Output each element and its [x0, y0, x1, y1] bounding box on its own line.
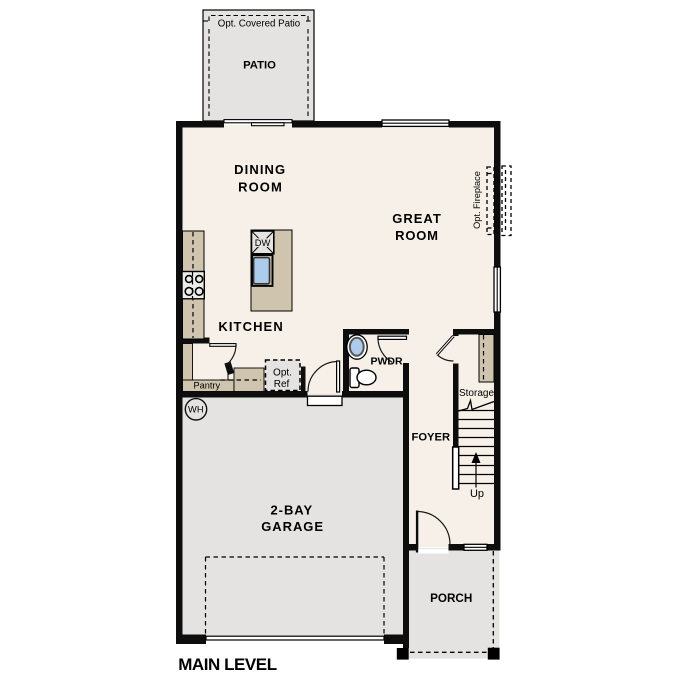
svg-text:WH: WH [188, 405, 204, 415]
svg-text:PATIO: PATIO [243, 60, 276, 72]
svg-text:KITCHEN: KITCHEN [218, 319, 283, 334]
svg-text:DINING: DINING [234, 162, 286, 177]
svg-text:PWDR: PWDR [370, 355, 402, 367]
svg-text:ROOM: ROOM [395, 228, 439, 243]
svg-text:Pantry: Pantry [194, 380, 221, 390]
svg-text:Storage: Storage [459, 388, 494, 399]
svg-text:PORCH: PORCH [430, 592, 472, 605]
svg-text:2-BAY: 2-BAY [271, 503, 314, 518]
svg-text:Ref: Ref [274, 379, 290, 390]
svg-text:Opt. Covered Patio: Opt. Covered Patio [218, 18, 300, 29]
svg-text:FOYER: FOYER [412, 432, 451, 444]
svg-text:DW: DW [255, 237, 271, 248]
svg-text:GREAT: GREAT [392, 211, 442, 226]
svg-text:GARAGE: GARAGE [261, 519, 324, 534]
svg-text:ROOM: ROOM [238, 179, 283, 194]
svg-text:Opt. Fireplace: Opt. Fireplace [472, 171, 482, 229]
svg-text:Up: Up [470, 488, 484, 500]
svg-text:Opt.: Opt. [273, 368, 292, 379]
svg-text:MAIN LEVEL: MAIN LEVEL [178, 655, 277, 674]
